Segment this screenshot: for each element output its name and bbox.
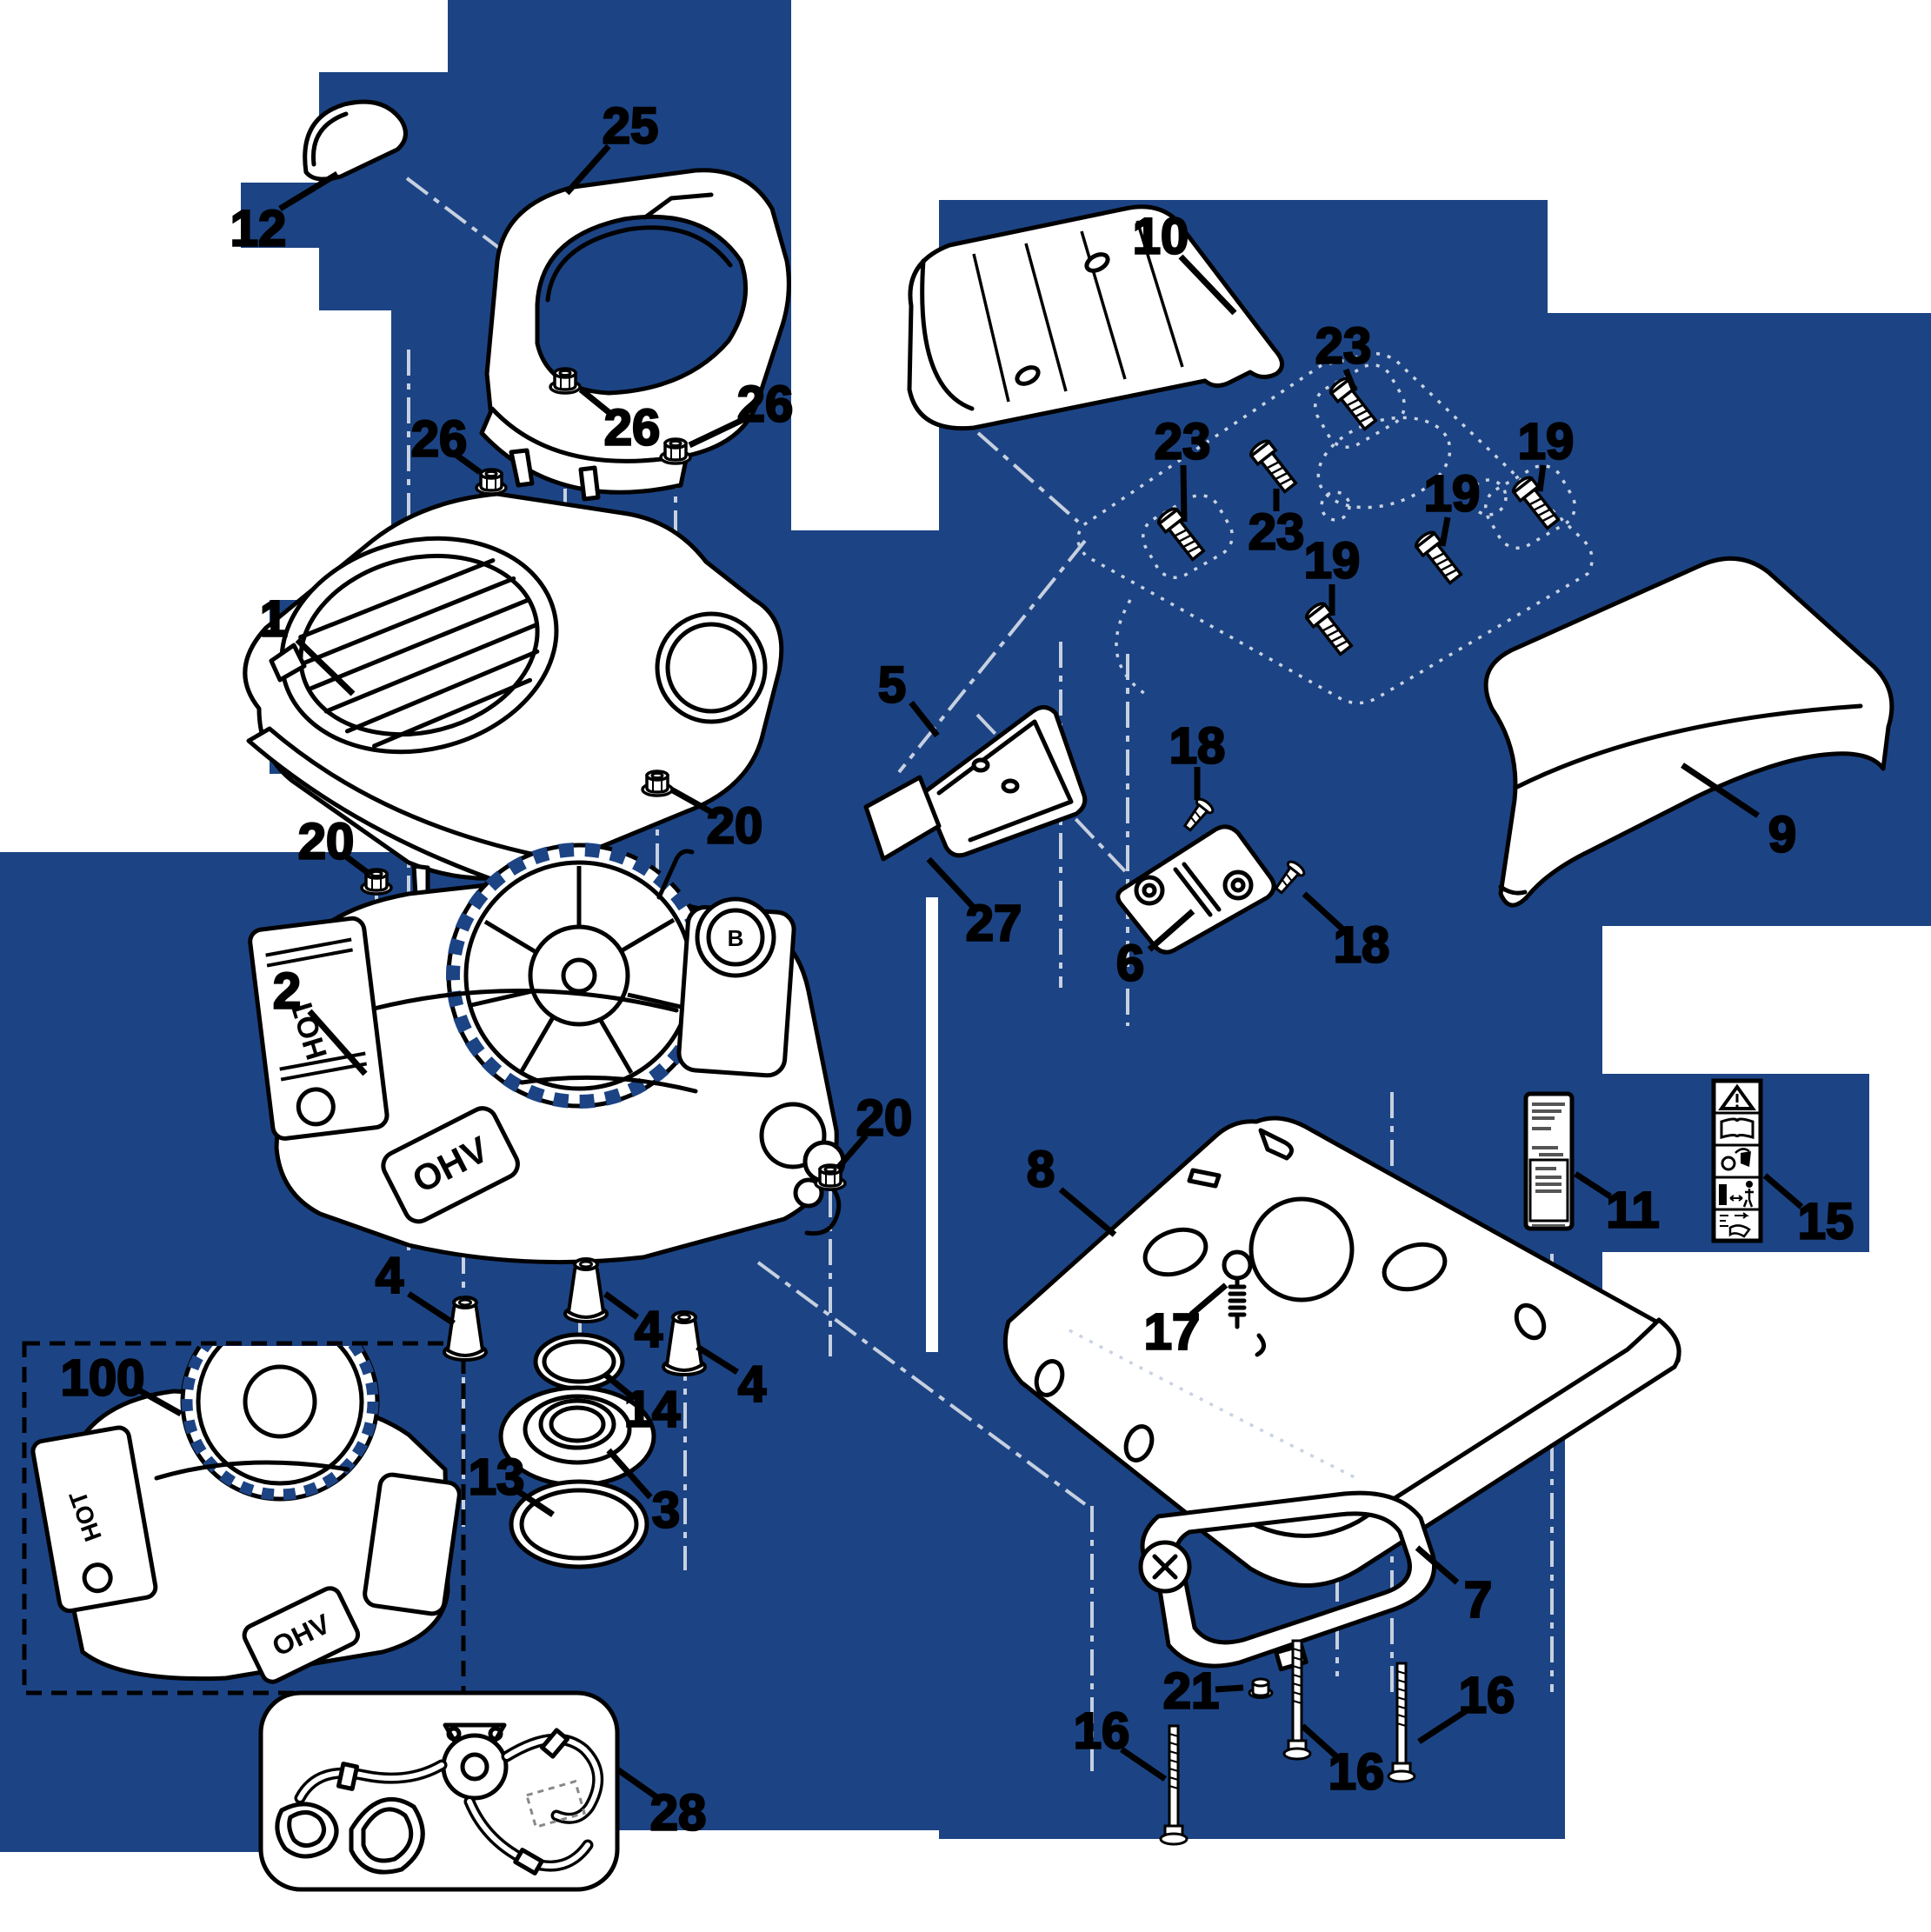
callout-number-23: 23 xyxy=(1315,318,1372,375)
part-11-id-label xyxy=(1526,1094,1572,1229)
part-nut-small xyxy=(1249,1679,1272,1698)
callout-number-26: 26 xyxy=(737,376,794,433)
exploded-diagram-canvas: HOT OHV B xyxy=(0,0,1931,1932)
part-nut xyxy=(550,369,580,393)
callout-leader-23 xyxy=(1183,465,1184,522)
callout-number-4: 4 xyxy=(376,1248,403,1304)
callout-number-5: 5 xyxy=(878,657,906,714)
callout-number-27: 27 xyxy=(966,896,1022,952)
recoil-starter xyxy=(449,845,709,1106)
part-13-o-ring xyxy=(511,1482,647,1567)
panel-gap xyxy=(926,897,938,1352)
part-nut xyxy=(661,439,690,463)
callout-number-2: 2 xyxy=(273,963,301,1020)
callout-number-8: 8 xyxy=(1027,1142,1055,1198)
callout-number-18: 18 xyxy=(1334,917,1390,974)
callout-number-16: 16 xyxy=(1328,1744,1385,1801)
callout-number-1: 1 xyxy=(260,591,288,648)
callout-number-13: 13 xyxy=(469,1449,525,1506)
callout-number-20: 20 xyxy=(298,814,355,870)
callout-number-4: 4 xyxy=(635,1302,663,1358)
callout-number-19: 19 xyxy=(1304,533,1361,590)
callout-number-19: 19 xyxy=(1424,466,1481,523)
callout-number-16: 16 xyxy=(1074,1703,1130,1760)
callout-number-15: 15 xyxy=(1798,1194,1854,1250)
panel-gap-lines xyxy=(926,897,938,1352)
callout-number-21: 21 xyxy=(1163,1663,1220,1720)
part-15-safety-label xyxy=(1714,1081,1761,1241)
parts-diagram-page: HOT OHV B xyxy=(0,0,1931,1932)
callout-number-25: 25 xyxy=(603,98,659,155)
callout-number-17: 17 xyxy=(1144,1304,1201,1361)
callout-number-11: 11 xyxy=(1606,1183,1659,1239)
callout-number-23: 23 xyxy=(1155,414,1211,470)
callout-number-7: 7 xyxy=(1464,1572,1492,1629)
callout-number-12: 12 xyxy=(230,201,287,257)
callout-number-10: 10 xyxy=(1133,209,1189,265)
callout-number-14: 14 xyxy=(624,1382,681,1438)
part-nut xyxy=(643,771,672,796)
callout-number-26: 26 xyxy=(604,400,661,456)
callout-number-20: 20 xyxy=(856,1090,913,1147)
callout-number-23: 23 xyxy=(1248,504,1305,561)
callout-number-4: 4 xyxy=(738,1356,766,1413)
callout-number-100: 100 xyxy=(61,1350,145,1407)
fuel-tank: B xyxy=(678,899,796,1076)
callout-number-20: 20 xyxy=(707,798,763,855)
callout-number-6: 6 xyxy=(1116,936,1144,992)
muffler-guard: HOT xyxy=(249,917,389,1140)
callout-number-9: 9 xyxy=(1768,807,1796,863)
callout-number-19: 19 xyxy=(1518,414,1575,470)
fuel-cap-marking: B xyxy=(728,925,744,951)
callout-number-18: 18 xyxy=(1169,718,1226,775)
callout-number-16: 16 xyxy=(1459,1668,1515,1724)
callout-number-3: 3 xyxy=(652,1482,680,1539)
callout-leader-21 xyxy=(1215,1688,1243,1689)
kit-fuel-pump xyxy=(443,1725,506,1798)
callout-number-28: 28 xyxy=(650,1785,707,1842)
part-28-kit xyxy=(261,1693,617,1889)
callout-number-26: 26 xyxy=(411,411,468,468)
part-nut xyxy=(476,470,506,494)
